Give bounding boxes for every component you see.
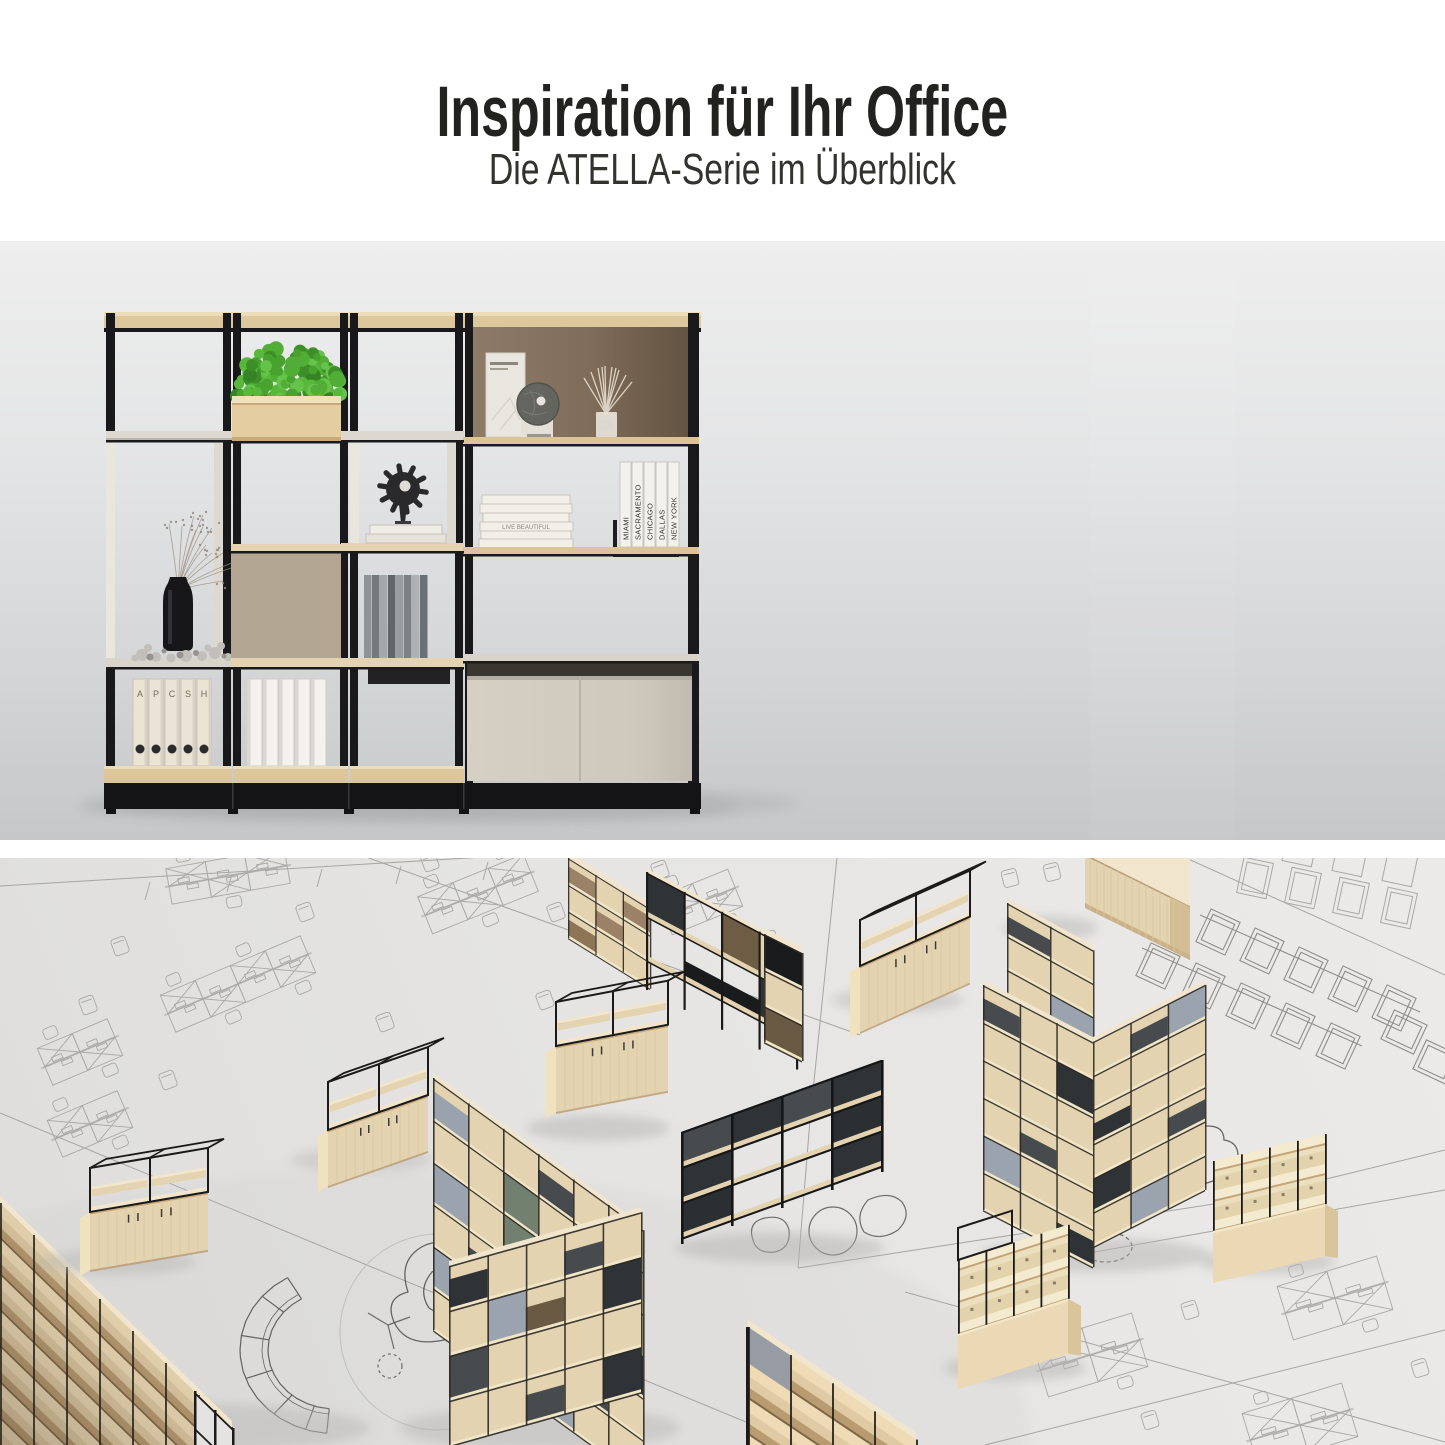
svg-text:MIAMI: MIAMI <box>622 517 631 540</box>
svg-text:H: H <box>201 689 208 699</box>
svg-text:CHICAGO: CHICAGO <box>646 503 655 540</box>
svg-text:C: C <box>169 689 176 699</box>
svg-text:A: A <box>137 689 143 699</box>
svg-text:SACRAMENTO: SACRAMENTO <box>634 484 643 540</box>
svg-text:DALLAS: DALLAS <box>658 509 667 540</box>
svg-text:S: S <box>185 689 191 699</box>
svg-text:NEW YORK: NEW YORK <box>670 497 679 540</box>
svg-text:LIVE BEAUTIFUL: LIVE BEAUTIFUL <box>502 525 550 531</box>
svg-text:P: P <box>153 689 159 699</box>
